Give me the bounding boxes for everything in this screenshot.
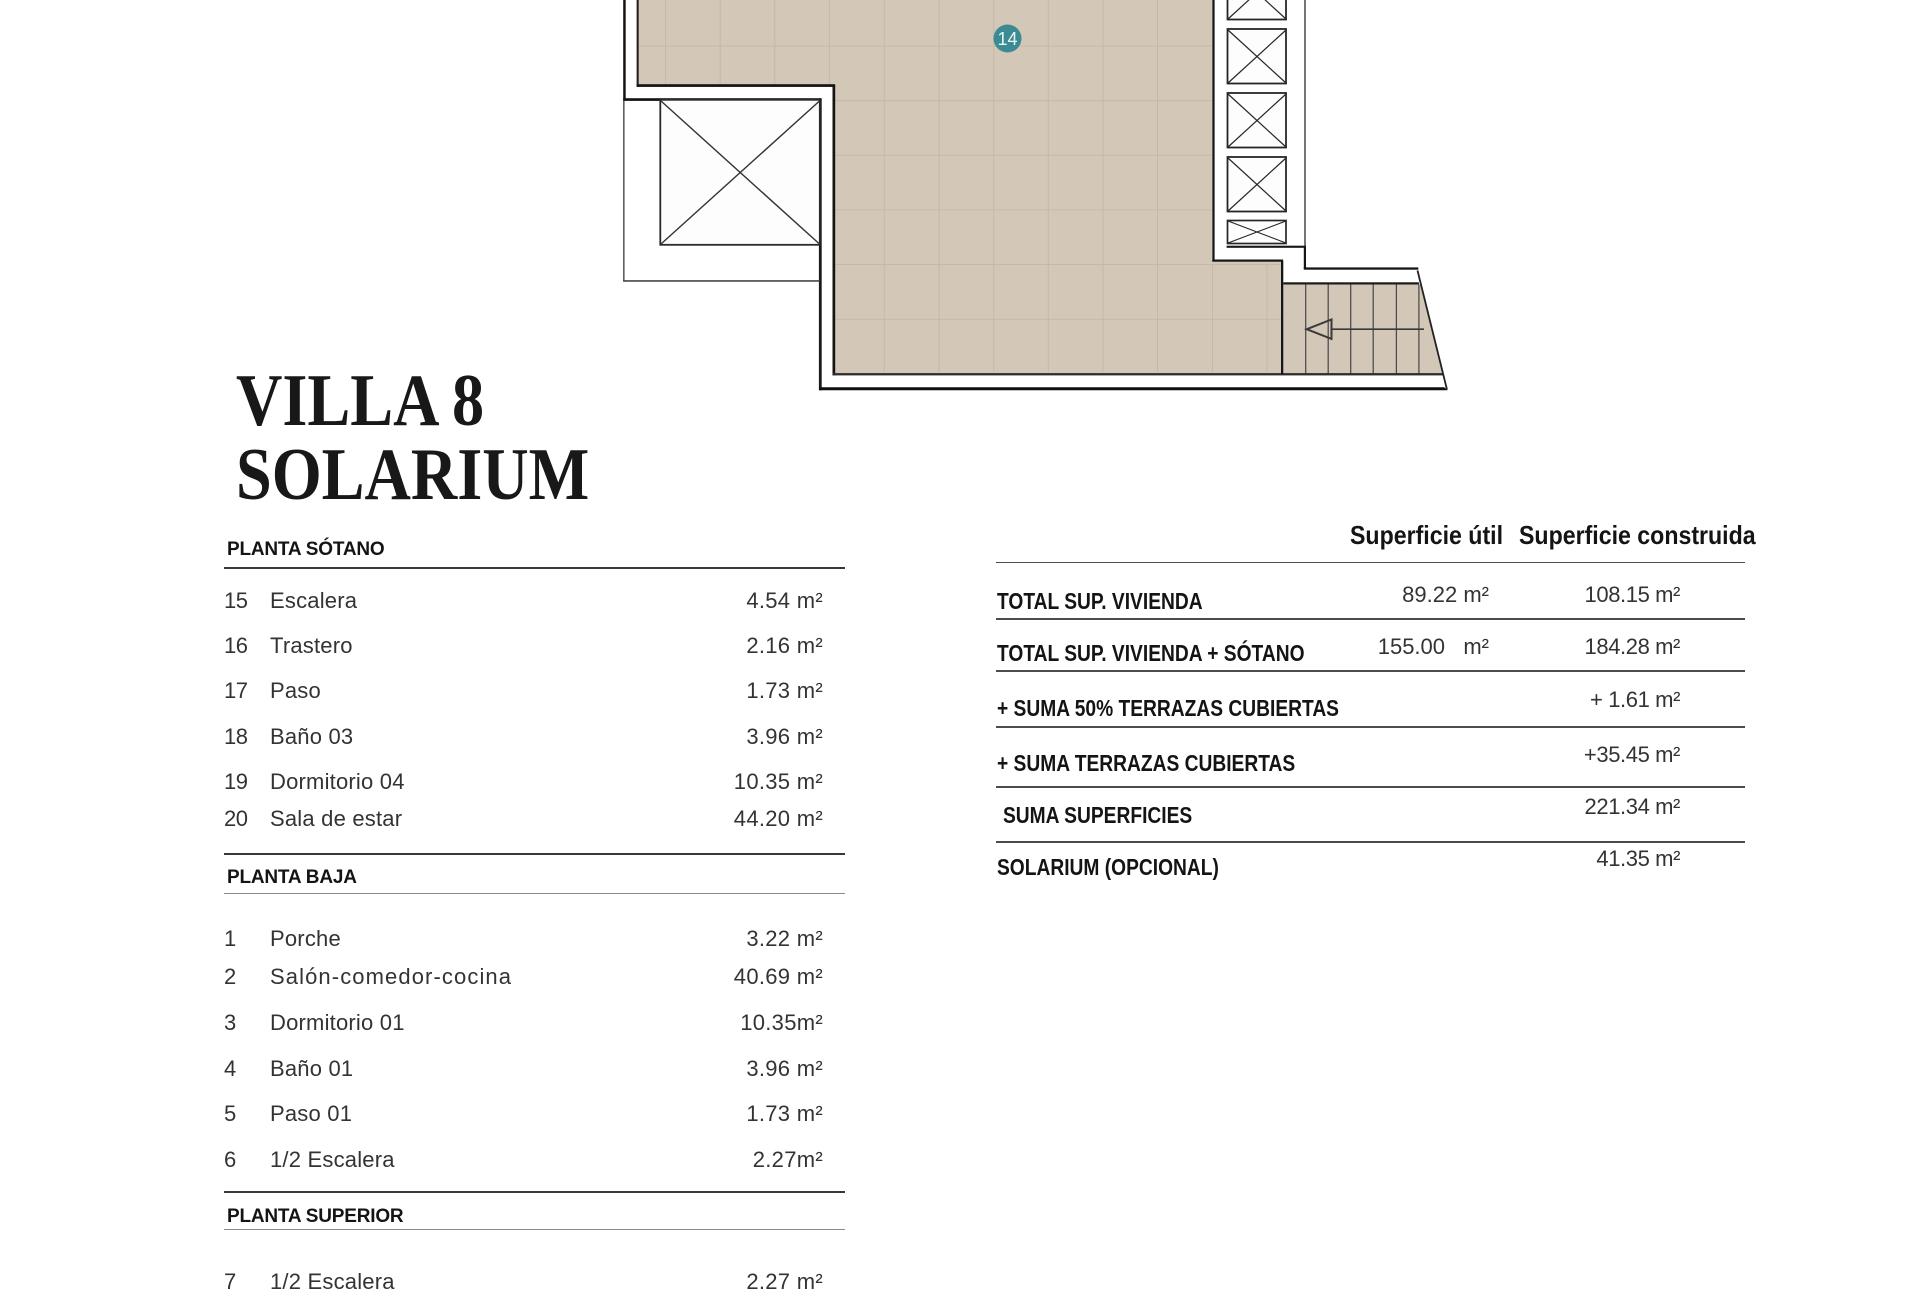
svg-text:14: 14: [997, 29, 1017, 49]
